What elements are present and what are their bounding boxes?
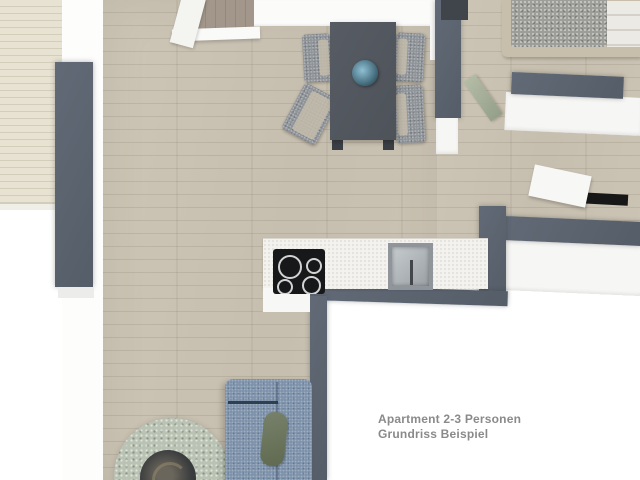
table-leg [383, 139, 394, 150]
dining-chair [394, 84, 426, 143]
left-interior-wall [55, 62, 93, 287]
dining-chair [302, 33, 332, 82]
chair-seat [396, 93, 408, 135]
bed-pillows [607, 1, 640, 47]
burner-ring [306, 258, 322, 274]
floor-plan-render: Apartment 2-3 Personen Grundriss Beispie… [0, 0, 640, 480]
burner-ring [278, 255, 302, 279]
balcony-deck [0, 0, 62, 207]
left-wall-end-face [58, 287, 94, 298]
table-leg [332, 139, 343, 150]
faucet [410, 260, 413, 285]
hall-wall-cap [441, 0, 468, 20]
caption: Apartment 2-3 Personen Grundriss Beispie… [378, 412, 598, 442]
chair-seat [396, 38, 408, 74]
exterior-area [325, 293, 640, 480]
chair-seat [318, 39, 330, 75]
burner-ring [277, 279, 293, 294]
plant-vase [352, 60, 378, 86]
caption-line-2: Grundriss Beispiel [378, 427, 598, 442]
bottom-wall [310, 296, 327, 480]
sofa-seam [228, 401, 278, 404]
balcony-sill [0, 203, 62, 210]
dining-chair [394, 32, 426, 82]
burner-ring [302, 276, 321, 294]
bed-duvet [511, 0, 607, 47]
hall-wall-end-face [436, 118, 458, 154]
entry-doorway-tile [196, 0, 254, 30]
cooktop [273, 249, 325, 294]
bathroom-wall-face [502, 238, 640, 296]
caption-line-1: Apartment 2-3 Personen [378, 412, 598, 427]
